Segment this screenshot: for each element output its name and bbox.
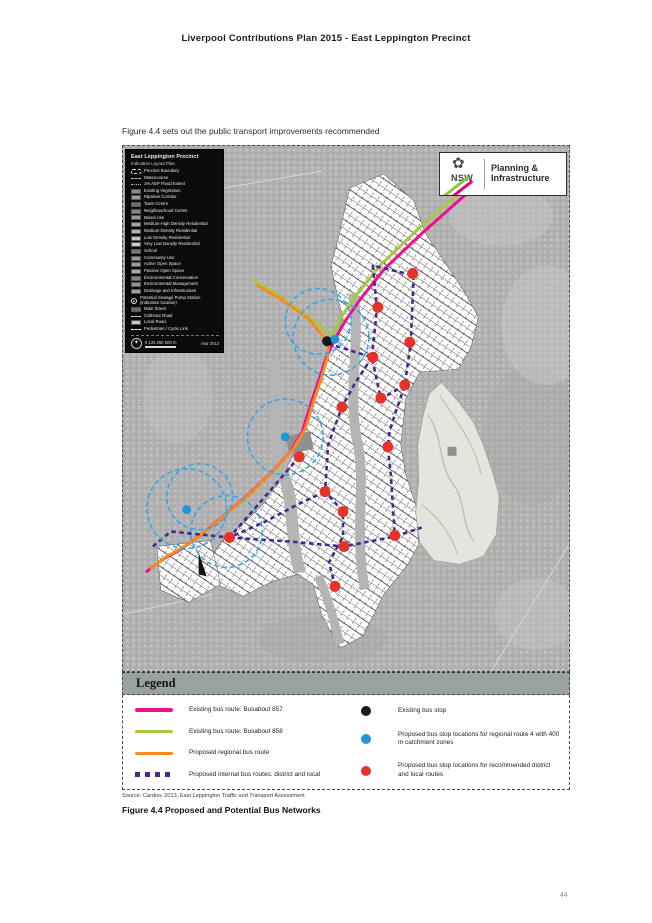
ilp-legend-item: Low Density Residential: [131, 236, 219, 241]
district-local-stop: [399, 380, 410, 391]
legend-item-label: Existing bus route: Busabout 857: [189, 706, 283, 714]
ilp-legend-label: School: [144, 249, 157, 254]
page-number: 44: [560, 892, 568, 899]
ilp-legend-label: Local Road: [144, 320, 166, 325]
route-line-swatch-icon: [135, 730, 173, 734]
ilp-legend-item: Neighbourhood Centre: [131, 209, 219, 214]
legend-item: Proposed bus stop locations for regional…: [358, 731, 561, 748]
district-local-stop: [330, 581, 341, 592]
dash-line-swatch-icon: [131, 178, 141, 179]
ilp-legend-footer: ✦ 0 125 250 500 m Mar 2013: [131, 335, 219, 350]
open-space-building: [448, 447, 457, 456]
ilp-legend-label: Main Street: [144, 307, 166, 312]
ilp-legend-label: Community Use: [144, 256, 175, 261]
ilp-legend-item: Environmental Conservation: [131, 276, 219, 281]
legend-item: Proposed bus stop locations for recommen…: [358, 762, 561, 779]
ilp-legend-label: Medium Density Residential: [144, 229, 197, 234]
legend-item-label: Proposed regional bus route: [189, 749, 269, 757]
fill-swatch-icon: [131, 320, 141, 325]
bus-stop-dot-icon: [361, 706, 371, 716]
ilp-legend-item: Community Use: [131, 256, 219, 261]
district-local-stop: [372, 302, 383, 313]
fill-swatch-icon: [131, 276, 141, 281]
circle-p-swatch-icon: P: [131, 298, 137, 304]
legend-item-label: Existing bus route: Busabout 858: [189, 728, 283, 736]
ilp-legend-item: Watercourse: [131, 176, 219, 181]
district-local-stop: [294, 451, 305, 462]
district-local-stop: [224, 532, 235, 543]
ilp-legend-item: Precinct Boundary: [131, 169, 219, 174]
fill-swatch-icon: [131, 229, 141, 234]
ilp-legend-item: Very Low Density Residential: [131, 242, 219, 247]
ilp-legend-subtitle: Indicative Layout Plan: [131, 161, 219, 166]
ilp-legend-items: Precinct BoundaryWatercourse1% AEP Flood…: [131, 169, 219, 332]
route-line-swatch: [135, 730, 177, 734]
fill-swatch-icon: [131, 282, 141, 287]
intro-text: Figure 4.4 sets out the public transport…: [122, 126, 562, 136]
regional-stop: [182, 505, 191, 514]
route-line-swatch: [135, 752, 177, 756]
existing-stop: [322, 336, 332, 346]
district-local-stop: [338, 506, 349, 517]
legend-item: Existing bus stop: [358, 706, 561, 716]
ilp-legend-label: Very Low Density Residential: [144, 242, 200, 247]
ilp-legend-label: Potential Sewage Pump Station (indicativ…: [140, 296, 219, 306]
legend-item: Proposed internal bus routes: district a…: [135, 771, 338, 779]
legend-header: Legend: [122, 672, 570, 695]
route-line-swatch-icon: [135, 708, 173, 712]
ilp-legend-item: Medium-High Density Residential: [131, 222, 219, 227]
figure-caption: Figure 4.4 Proposed and Potential Bus Ne…: [122, 805, 570, 815]
ilp-legend-label: Active Open Space: [144, 262, 181, 267]
ilp-legend-label: Medium-High Density Residential: [144, 222, 208, 227]
bus-stop-dot-icon: [361, 734, 371, 744]
legend-item-label: Existing bus stop: [398, 707, 446, 715]
ilp-legend-label: Watercourse: [144, 176, 168, 181]
fill-swatch-icon: [131, 209, 141, 214]
page-header: Liverpool Contributions Plan 2015 - East…: [0, 33, 652, 44]
legend-title: Legend: [136, 676, 176, 691]
dash-line-swatch-icon: [131, 329, 141, 330]
bus-stop-swatch: [358, 706, 386, 716]
fill-swatch-icon: [131, 269, 141, 274]
ilp-legend: East Leppington Precinct Indicative Layo…: [125, 149, 224, 353]
district-local-stop: [389, 530, 400, 541]
ilp-legend-item: PPotential Sewage Pump Station (indicati…: [131, 296, 219, 306]
district-local-stop: [375, 393, 386, 404]
legend-item: Proposed regional bus route: [135, 749, 338, 757]
ilp-legend-label: Drainage and Infrastructure: [144, 289, 196, 294]
fill-swatch-icon: [131, 202, 141, 207]
legend-items: Existing bus route: Busabout 857Existing…: [122, 695, 570, 790]
ilp-legend-label: Environmental Conservation: [144, 276, 198, 281]
ilp-legend-item: Mixed Use: [131, 215, 219, 220]
fill-swatch-icon: [131, 307, 141, 312]
ilp-legend-label: Pedestrian / Cycle Link: [144, 327, 188, 332]
ilp-legend-label: Environmental Management: [144, 282, 198, 287]
ilp-legend-label: Precinct Boundary: [144, 169, 179, 174]
legend-item-label: Proposed internal bus routes: district a…: [189, 771, 320, 779]
legend-column-stops: Existing bus stopProposed bus stop locat…: [346, 704, 569, 781]
ilp-legend-item: Environmental Management: [131, 282, 219, 287]
fill-swatch-icon: [131, 236, 141, 241]
district-local-stop: [339, 541, 350, 552]
map-canvas: East Leppington Precinct Indicative Layo…: [122, 145, 570, 672]
nsw-waratah-icon: ✿ NSW: [440, 153, 484, 195]
legend-item-label: Proposed bus stop locations for recommen…: [398, 762, 561, 779]
ilp-legend-label: Passive Open Space: [144, 269, 184, 274]
legend-item: Existing bus route: Busabout 858: [135, 728, 338, 736]
nsw-planning-logo: ✿ NSW Planning & Infrastructure: [439, 152, 567, 196]
ilp-legend-label: Mixed Use: [144, 216, 164, 221]
document-page: Liverpool Contributions Plan 2015 - East…: [0, 0, 652, 923]
ilp-legend-label: Existing Vegetation: [144, 189, 181, 194]
ilp-legend-item: Passive Open Space: [131, 269, 219, 274]
district-local-stop: [407, 268, 418, 279]
ilp-legend-label: Town Centre: [144, 202, 168, 207]
regional-stop: [281, 432, 290, 441]
ilp-legend-item: Riparian Corridor: [131, 195, 219, 200]
ilp-legend-label: Riparian Corridor: [144, 195, 177, 200]
map-date: Mar 2013: [201, 341, 219, 346]
logo-text: Planning & Infrastructure: [485, 164, 550, 183]
ilp-legend-item: Existing Vegetation: [131, 189, 219, 194]
district-local-stop: [367, 352, 378, 363]
fill-swatch-icon: [131, 222, 141, 227]
bus-network-figure: East Leppington Precinct Indicative Layo…: [122, 145, 570, 815]
ilp-legend-item: Pedestrian / Cycle Link: [131, 327, 219, 332]
fill-swatch-icon: [131, 242, 141, 247]
fill-swatch-icon: [131, 256, 141, 261]
north-arrow-icon: ✦: [131, 338, 142, 349]
outline-dash-swatch-icon: [131, 169, 141, 174]
ilp-legend-item: School: [131, 249, 219, 254]
dashed-route-swatch: [135, 772, 177, 777]
route-line-swatch-icon: [135, 752, 173, 756]
dashed-route-swatch-icon: [135, 772, 170, 777]
legend-column-routes: Existing bus route: Busabout 857Existing…: [123, 704, 346, 781]
ilp-legend-item: 1% AEP Flood Extent: [131, 182, 219, 187]
regional-stop: [331, 335, 340, 344]
ilp-legend-item: Drainage and Infrastructure: [131, 289, 219, 294]
fill-swatch-icon: [131, 215, 141, 220]
district-local-stop: [337, 402, 348, 413]
ilp-legend-item: Collector Road: [131, 314, 219, 319]
ilp-legend-label: 1% AEP Flood Extent: [144, 182, 185, 187]
ilp-legend-label: Neighbourhood Centre: [144, 209, 187, 214]
fill-swatch-icon: [131, 189, 141, 194]
dash-line-swatch-icon: [131, 316, 141, 317]
ilp-legend-item: Local Road: [131, 320, 219, 325]
bus-stop-swatch: [358, 734, 386, 744]
ilp-legend-title: East Leppington Precinct: [131, 154, 219, 160]
ilp-legend-label: Collector Road: [144, 314, 172, 319]
ilp-legend-item: Active Open Space: [131, 262, 219, 267]
fill-swatch-icon: [131, 262, 141, 267]
scale-bar: 0 125 250 500 m: [145, 340, 176, 348]
ilp-legend-label: Low Density Residential: [144, 236, 190, 241]
bus-stop-swatch: [358, 766, 386, 776]
bus-stop-dot-icon: [361, 766, 371, 776]
district-local-stop: [382, 441, 393, 452]
source-citation: Source: Cardno, 2013, East Leppington Tr…: [122, 793, 570, 799]
legend-item-label: Proposed bus stop locations for regional…: [398, 731, 561, 748]
ilp-legend-item: Town Centre: [131, 202, 219, 207]
district-local-stop: [404, 337, 415, 348]
zigzag-swatch-icon: [131, 184, 141, 185]
fill-swatch-icon: [131, 249, 141, 254]
legend-item: Existing bus route: Busabout 857: [135, 706, 338, 714]
ilp-legend-item: Medium Density Residential: [131, 229, 219, 234]
fill-swatch-icon: [131, 289, 141, 294]
district-local-stop: [320, 486, 331, 497]
fill-swatch-icon: [131, 195, 141, 200]
route-line-swatch: [135, 708, 177, 712]
ilp-legend-item: Main Street: [131, 307, 219, 312]
